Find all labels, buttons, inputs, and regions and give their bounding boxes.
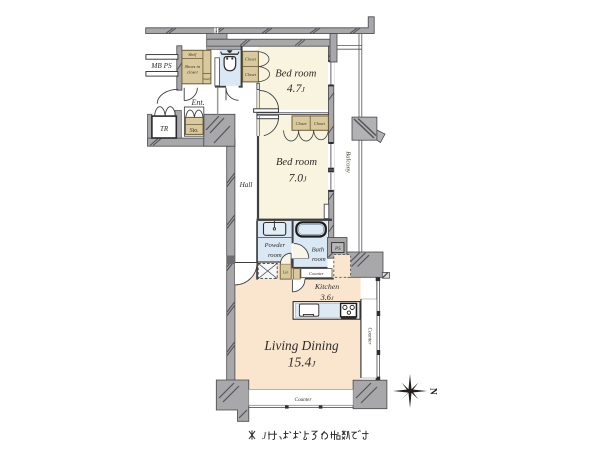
svg-text:Sto.: Sto.	[190, 128, 199, 134]
svg-text:Living Dining: Living Dining	[263, 338, 339, 353]
svg-text:Counter: Counter	[309, 271, 324, 276]
svg-text:Counter: Counter	[294, 397, 312, 403]
svg-text:room: room	[312, 256, 326, 263]
svg-text:Closet: Closet	[296, 121, 308, 126]
svg-text:room: room	[268, 252, 282, 259]
svg-text:MB PS: MB PS	[150, 62, 172, 70]
svg-text:N: N	[428, 388, 438, 395]
svg-text:PS: PS	[334, 247, 341, 252]
svg-text:Hall: Hall	[239, 181, 253, 189]
svg-text:Powder: Powder	[264, 242, 286, 249]
svg-text:Shelf: Shelf	[188, 52, 197, 57]
svg-text:Closet: Closet	[314, 121, 326, 126]
svg-text:Closet: Closet	[245, 57, 257, 62]
svg-text:Bed room: Bed room	[275, 69, 316, 80]
svg-text:Bed room: Bed room	[276, 157, 317, 168]
svg-text:Kitchen: Kitchen	[314, 282, 339, 291]
svg-text:Ent.: Ent.	[190, 98, 204, 107]
svg-text:Lin: Lin	[282, 270, 288, 275]
svg-text:TR: TR	[160, 125, 169, 133]
svg-text:Shelf: Shelf	[203, 77, 211, 81]
svg-text:closet: closet	[187, 70, 198, 75]
svg-text:Shoes in: Shoes in	[185, 64, 201, 69]
svg-text:Bath: Bath	[312, 246, 325, 253]
svg-text:Closet: Closet	[245, 72, 257, 77]
svg-text:Balcony: Balcony	[345, 151, 352, 173]
svg-text:Counter: Counter	[367, 327, 373, 345]
